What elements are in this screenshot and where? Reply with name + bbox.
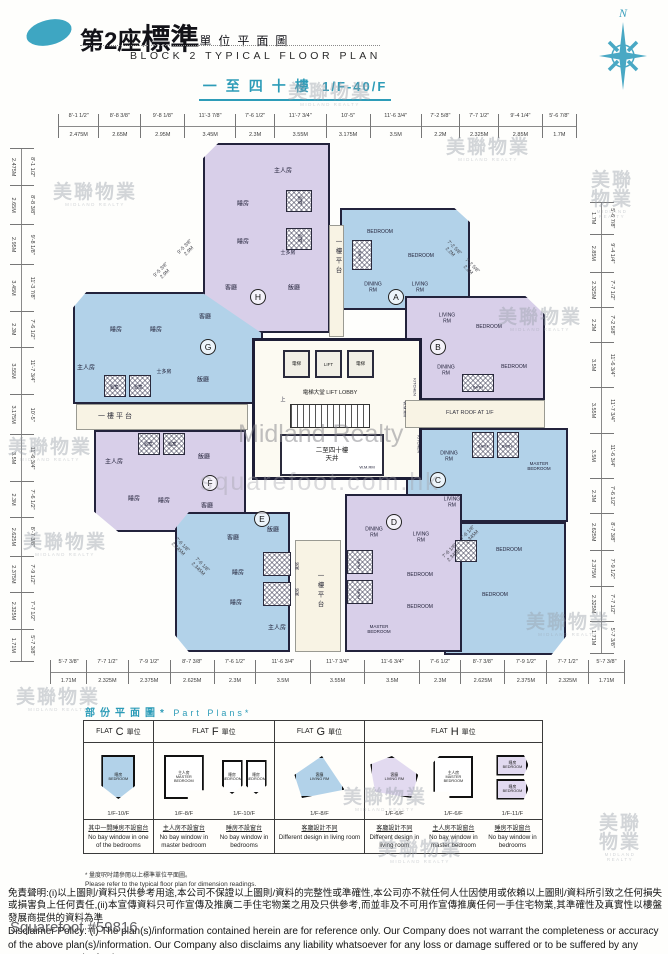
ruler-segment: 9'-8 1/8"2.95M [10, 224, 34, 264]
room-label: BATH [356, 589, 361, 599]
room-label: BEDROOM [408, 254, 434, 260]
room-label: DINING RM [365, 527, 383, 539]
room-label: BEDROOM [501, 365, 527, 371]
floor-plan-page: 第2座標準單位平面圖 BLOCK 2 TYPICAL FLOOR PLAN 一至… [0, 0, 668, 954]
ruler-segment: 7'-2 5/8"2.2M [590, 307, 614, 342]
part-plans-table: FLAT C 單位 睡房 BEDROOM 1/F-10/F 其中一 [83, 720, 543, 854]
ruler-segment: 11'-7 3/4"3.55M [310, 660, 365, 684]
ruler-segment: 7'-7 1/2"2.325M [10, 592, 34, 628]
room-label: 主人房 [274, 169, 292, 176]
flat-letter: F [212, 726, 219, 738]
ruler-bottom: 5'-7 3/8"1.71M7'-7 1/2"2.325M7'-9 1/2"2.… [50, 660, 625, 684]
flat-h-plan-3: 睡房 BEDROOM 睡房 BEDROOM 1/F-11/F [483, 743, 542, 819]
midland-watermark-stamp: 美聯物業MIDLAND REALTY [23, 533, 107, 557]
ruler-segment: 7'-7 1/2"2.325M [546, 660, 588, 684]
part-plans-col-g: FLAT G 單位 客廳 LIVING RM 1/F-8/F 客廳 [275, 721, 365, 853]
lift-left: 電梯 [283, 350, 310, 378]
unit-letter-badge: A [388, 289, 404, 305]
room-label: LIVING RM [439, 313, 455, 325]
flat-f-thumbnail-2b: 睡房 BEDROOM [246, 760, 267, 794]
ruler-segment: 8'-7 3/8"2.625M [460, 660, 504, 684]
floor-range-en: 1/F-40/F [322, 79, 387, 94]
room-label: 主人房 [105, 460, 123, 467]
unit-word: 單位 [127, 727, 141, 737]
flat-f-plan-2: 睡房 BEDROOM 睡房 BEDROOM 1/F-10/F [214, 743, 274, 819]
room-label: BATH [357, 251, 362, 261]
ruler-segment: 11'-6 3/4"3.5M [364, 660, 418, 684]
bathroom-hatch [263, 552, 291, 576]
part-plans-col-f: FLAT F 單位 主人房 MASTER BEDROOM 1/F-8/F [154, 721, 275, 853]
room-label: 浴室 [294, 562, 299, 570]
room-label: LIVING RM [412, 282, 428, 294]
flat-c-note: 其中一間睡房不設窗台 No bay window in one of the b… [84, 820, 153, 853]
ruler-right: 5'-6 7/8"1.7M9'-4 1/4"2.85M7'-7 1/2"2.32… [590, 202, 614, 654]
room-label: BEDROOM [407, 573, 433, 579]
flat-letter: H [451, 726, 459, 738]
footnote-cn: * 量度呎吋請參閱以上標準單位平面圖。 [85, 872, 256, 880]
room-label: 浴室 [168, 441, 177, 446]
ruler-segment: 8'-7 3/8"2.625M [10, 517, 34, 555]
room-label: BATH [356, 559, 361, 569]
flat-h-note-1: 客廳設計不同 Different design in living room [365, 820, 424, 853]
flat-letter: C [116, 726, 124, 738]
squarefoot-ref-watermark: Squarefoot #59816 [10, 919, 138, 936]
ruler-segment: 7'-7 1/2"2.325M [590, 586, 614, 621]
ruler-segment: 5'-6 7/8"1.7M [542, 114, 577, 138]
room-label: W.M.RM [402, 401, 407, 416]
flat-f-floors-2: 1/F-10/F [233, 811, 255, 817]
flat-c-header: FLAT C 單位 [84, 721, 153, 743]
room-label: 睡房 [237, 240, 249, 247]
floor-range-cn: 一至四十樓 [203, 78, 318, 94]
room-label: 飯廳 [198, 455, 210, 462]
room-label: BATH [473, 386, 483, 391]
ruler-segment: 11'-6 3/4"3.5M [370, 114, 421, 138]
room-label: 睡房 [230, 601, 242, 608]
ruler-segment: 7'-9 1/2"2.375M [10, 556, 34, 593]
room-label: 睡房 [232, 571, 244, 578]
flat-g-thumbnail: 客廳 LIVING RM [294, 756, 344, 798]
ruler-segment: 11'-3 7/8"3.45M [184, 114, 235, 138]
title-dotted-rule [80, 45, 380, 46]
unit-letter-badge: B [430, 339, 446, 355]
compass-rose-icon: N [592, 4, 654, 94]
ruler-segment: 11'-6 3/4"3.5M [10, 434, 34, 481]
room-label: KITCHEN [416, 435, 421, 453]
flat-h-note-2: 主人房不設窗台 No bay window in master bedroom [424, 820, 483, 853]
flat-c-thumbnail: 睡房 BEDROOM [101, 755, 135, 799]
podium-bottom-label: 一樓平台 [314, 572, 324, 610]
flat-word: FLAT [96, 728, 113, 735]
room-label: BATH [502, 445, 512, 450]
ruler-segment: 11'-6 3/4"3.5M [590, 342, 614, 387]
room-label: 睡房 [150, 328, 162, 335]
ruler-segment: 10'-5"3.175M [326, 114, 370, 138]
flat-roof-label: FLAT ROOF AT 1/F [446, 410, 494, 416]
part-plans-title-en: Part Plans* [173, 708, 251, 718]
squarefoot-watermark: squarefoot.com.hk [200, 468, 440, 497]
ruler-segment: 7'-6 1/2"2.3M [214, 660, 255, 684]
flat-f-floors-1: 1/F-8/F [174, 811, 193, 817]
ruler-segment: 9'-4 1/4"2.85M [498, 114, 541, 138]
flat-g-plan: 客廳 LIVING RM 1/F-8/F [275, 743, 364, 819]
ruler-segment: 8'-7 3/8"2.625M [590, 513, 614, 550]
ruler-segment: 5'-7 3/8"1.71M [588, 660, 625, 684]
flat-f-thumbnail-1: 主人房 MASTER BEDROOM [164, 755, 204, 799]
midland-watermark-stamp: 美聯物業MIDLAND REALTY [446, 138, 530, 162]
room-label: LIVING RM [413, 532, 429, 544]
room-label: 主人房 [77, 366, 95, 373]
room-label: 客廳 [225, 286, 237, 293]
room-label: 飯廳 [288, 286, 300, 293]
room-label: BEDROOM [496, 548, 522, 554]
room-label: 上 [280, 398, 285, 404]
flat-f-note-2: 睡房不設窗台 No bay window in bedrooms [214, 820, 274, 853]
ruler-segment: 7'-9 1/2"2.375M [128, 660, 170, 684]
room-label: 主人房 [268, 626, 286, 633]
flat-h-floors-1: 1/F-6/F [385, 811, 404, 817]
room-label: 浴室 [144, 441, 153, 446]
midland-watermark-stamp: 美聯物業MIDLAND REALTY [53, 183, 137, 207]
room-label: BEDROOM [407, 605, 433, 611]
lift-right: 電梯 [347, 350, 374, 378]
ruler-segment: 7'-9 1/2"2.375M [504, 660, 546, 684]
room-label: 浴室 [297, 234, 302, 243]
unit-word: 單位 [462, 727, 476, 737]
part-plans-title-cn: 部份平面圖* [85, 708, 169, 719]
midland-watermark-stamp: 美聯物業MIDLAND REALTY [596, 814, 644, 862]
room-label: DINING RM [437, 365, 455, 377]
room-label: MASTER BEDROOM [527, 461, 550, 471]
ruler-segment: 10'-5"3.175M [10, 394, 34, 434]
ruler-segment: 7'-6 1/2"2.3M [590, 478, 614, 513]
floor-range: 一至四十樓 1/F-40/F [155, 76, 435, 101]
podium-top-label: 一樓平台 [332, 238, 342, 276]
unit-letter-badge: D [386, 514, 402, 530]
room-label: 士多房 [156, 370, 171, 376]
flat-h-plan-1: 客廳 LIVING RM 1/F-6/F [365, 743, 424, 819]
lift-middle: LIFT [315, 350, 342, 378]
flat-word: FLAT [297, 728, 314, 735]
unit-letter-badge: E [254, 511, 270, 527]
flat-h-thumbnail-3a: 睡房 BEDROOM [496, 755, 528, 776]
ruler-segment: 7'-6 1/2"2.3M [235, 114, 274, 138]
flat-c-floors: 1/F-10/F [107, 811, 129, 817]
flat-f-thumbnail-2a: 睡房 BEDROOM [222, 760, 243, 794]
ruler-segment: 8'-1 1/2"2.475M [58, 114, 98, 138]
room-label: 睡房 [237, 202, 249, 209]
room-label: 睡房 [110, 328, 122, 335]
ruler-segment: 11'-6 3/4"3.5M [590, 433, 614, 478]
flat-c-plan: 睡房 BEDROOM 1/F-10/F [84, 743, 153, 819]
ruler-left: 8'-1 1/2"2.475M8'-8 3/8"2.65M9'-8 1/8"2.… [10, 148, 34, 662]
room-label: MASTER BEDROOM [367, 624, 390, 634]
ruler-segment: 11'-7 3/4"3.55M [10, 347, 34, 394]
page-title-en: BLOCK 2 TYPICAL FLOOR PLAN [130, 50, 381, 62]
room-label: BEDROOM [482, 593, 508, 599]
flat-f-plan-1: 主人房 MASTER BEDROOM 1/F-8/F [154, 743, 214, 819]
room-label: 客廳 [201, 504, 213, 511]
flat-h-floors-3: 1/F-11/F [502, 811, 523, 817]
lift-lobby-label: 電梯大堂 LIFT LOBBY [303, 388, 358, 396]
part-plans-title: 部份平面圖* Part Plans* [85, 703, 251, 721]
flat-g-floors: 1/F-8/F [310, 811, 329, 817]
ruler-top: 8'-1 1/2"2.475M8'-8 3/8"2.65M9'-8 1/8"2.… [58, 114, 577, 138]
room-label: 客廳 [199, 315, 211, 322]
room-label: DINING RM [440, 451, 458, 463]
diagonal-dimension: 9'-5 3/8"2.9M [176, 238, 197, 259]
flat-h-thumbnail-2: 主人房 MASTER BEDROOM [433, 756, 473, 798]
flat-h-note-3: 睡房不設窗台 No bay window in bedrooms [483, 820, 542, 853]
ruler-segment: 5'-7 3/8"1.71M [590, 621, 614, 654]
room-label: 浴室 [134, 384, 143, 389]
room-label: LIVING RM [444, 497, 460, 509]
flat-h-plan-2: 主人房 MASTER BEDROOM 1/F-6/F [424, 743, 483, 819]
part-plans-col-h: FLAT H 單位 客廳 LIVING RM 1/F-6/F [365, 721, 542, 853]
ruler-segment: 11'-7 3/4"3.55M [590, 387, 614, 433]
flat-g-header: FLAT G 單位 [275, 721, 364, 743]
room-label: 浴室 [110, 384, 119, 389]
flat-h-floors-2: 1/F-6/F [444, 811, 463, 817]
ruler-segment: 7'-9 1/2"2.375M [590, 550, 614, 586]
podium-left-label: 一樓平台 [98, 411, 134, 421]
ruler-segment: 8'-7 3/8"2.625M [170, 660, 214, 684]
ruler-segment: 7'-7 1/2"2.325M [590, 272, 614, 307]
bathroom-hatch [263, 582, 291, 606]
ruler-segment: 11'-3 7/8"3.45M [10, 264, 34, 310]
ruler-segment: 7'-6 1/2"2.3M [419, 660, 460, 684]
ruler-segment: 5'-6 7/8"1.7M [590, 202, 614, 234]
unit-letter-badge: G [200, 339, 216, 355]
room-label: 士多房 [280, 251, 295, 257]
ruler-segment: 8'-8 3/8"2.65M [10, 185, 34, 224]
part-plans-col-c: FLAT C 單位 睡房 BEDROOM 1/F-10/F 其中一 [84, 721, 154, 853]
ruler-segment: 11'-7 3/4"3.55M [274, 114, 325, 138]
room-label: KITCHEN [412, 378, 417, 396]
room-label: 飯廳 [267, 528, 279, 535]
ruler-segment: 5'-7 3/8"1.71M [10, 629, 34, 662]
ruler-segment: 5'-7 3/8"1.71M [50, 660, 86, 684]
ruler-segment: 7'-7 1/2"2.325M [86, 660, 128, 684]
room-label: BEDROOM [367, 230, 393, 236]
unit-word: 單位 [222, 727, 236, 737]
ruler-segment: 8'-1 1/2"2.475M [10, 148, 34, 185]
ruler-segment: 9'-4 1/4"2.85M [590, 234, 614, 273]
diagonal-dimension: 9'-5 3/8"2.9M [152, 261, 173, 282]
flat-f-header: FLAT F 單位 [154, 721, 274, 743]
ruler-segment: 11'-6 3/4"3.5M [255, 660, 309, 684]
room-label: BATH [478, 445, 488, 450]
ruler-segment: 7'-7 1/2"2.325M [459, 114, 498, 138]
flat-word: FLAT [192, 728, 209, 735]
flat-h-thumbnail-1: 客廳 LIVING RM [370, 756, 418, 798]
room-label: 客廳 [227, 536, 239, 543]
flat-f-note-1: 主人房不設窗台 No bay window in master bedroom [154, 820, 214, 853]
ruler-segment: 9'-8 1/8"2.95M [140, 114, 184, 138]
ruler-segment: 7'-2 5/8"2.2M [421, 114, 459, 138]
part-plans-footnote: * 量度呎吋請參閱以上標準單位平面圖。 Please refer to the … [85, 872, 256, 889]
flat-g-note: 客廳設計不同 Different design in living room [275, 820, 364, 853]
unit-word: 單位 [328, 727, 342, 737]
flat-h-thumbnail-3b: 睡房 BEDROOM [496, 779, 528, 800]
room-label: 飯廳 [197, 378, 209, 385]
room-label: DINING RM [364, 282, 382, 294]
room-label: 浴室 [294, 588, 299, 596]
flat-letter: G [317, 726, 326, 738]
flat-h-header: FLAT H 單位 [365, 721, 542, 743]
room-label: 浴室 [297, 196, 302, 205]
ruler-segment: 7'-6 1/2"2.3M [10, 481, 34, 517]
room-label: BEDROOM [476, 325, 502, 331]
compass-n-label: N [618, 6, 628, 20]
brand-ellipse-logo [24, 15, 75, 50]
ruler-segment: 8'-8 3/8"2.65M [98, 114, 140, 138]
room-label: 睡房 [128, 497, 140, 504]
room-label: 睡房 [158, 499, 170, 506]
ruler-segment: 7'-6 1/2"2.3M [10, 311, 34, 347]
unit-letter-badge: H [250, 289, 266, 305]
flat-word: FLAT [431, 728, 448, 735]
midland-realty-watermark: Midland Realty [238, 420, 403, 449]
